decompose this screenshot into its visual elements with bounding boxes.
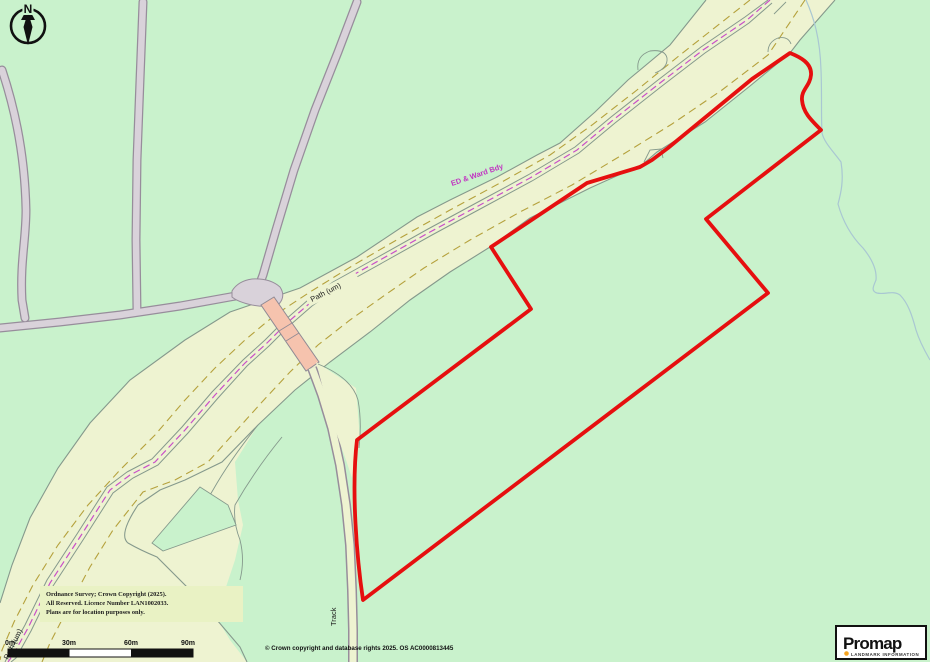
north-label: N xyxy=(24,2,33,16)
copyright-line-1: Ordnance Survey; Crown Copyright (2025). xyxy=(46,591,167,598)
scale-bar-seg3 xyxy=(131,649,193,657)
promap-logo: Promap LANDMARK INFORMATION xyxy=(836,626,926,659)
copyright-line-2: All Reserved. Licence Number LAN1002033. xyxy=(46,600,169,607)
scale-label-60: 60m xyxy=(124,640,138,647)
logo-brand: Promap xyxy=(843,634,902,653)
scale-bar-seg1 xyxy=(8,649,70,657)
copyright-line-3: Plans are for location purposes only. xyxy=(46,609,145,616)
scale-label-30: 30m xyxy=(62,640,76,647)
logo-dot-icon xyxy=(844,651,849,656)
promap-location-plan: ED & Ward Bdy Path (um) Path (um) Track … xyxy=(0,0,930,662)
footer-copyright: © Crown copyright and database rights 20… xyxy=(265,645,454,652)
scale-label-0: 0m xyxy=(5,640,15,647)
track-label: Track xyxy=(329,607,338,626)
copyright-box: Ordnance Survey; Crown Copyright (2025).… xyxy=(40,586,243,622)
logo-tagline: LANDMARK INFORMATION xyxy=(851,652,919,657)
scale-label-90: 90m xyxy=(181,640,195,647)
map-viewport[interactable]: ED & Ward Bdy Path (um) Path (um) Track … xyxy=(0,0,930,662)
